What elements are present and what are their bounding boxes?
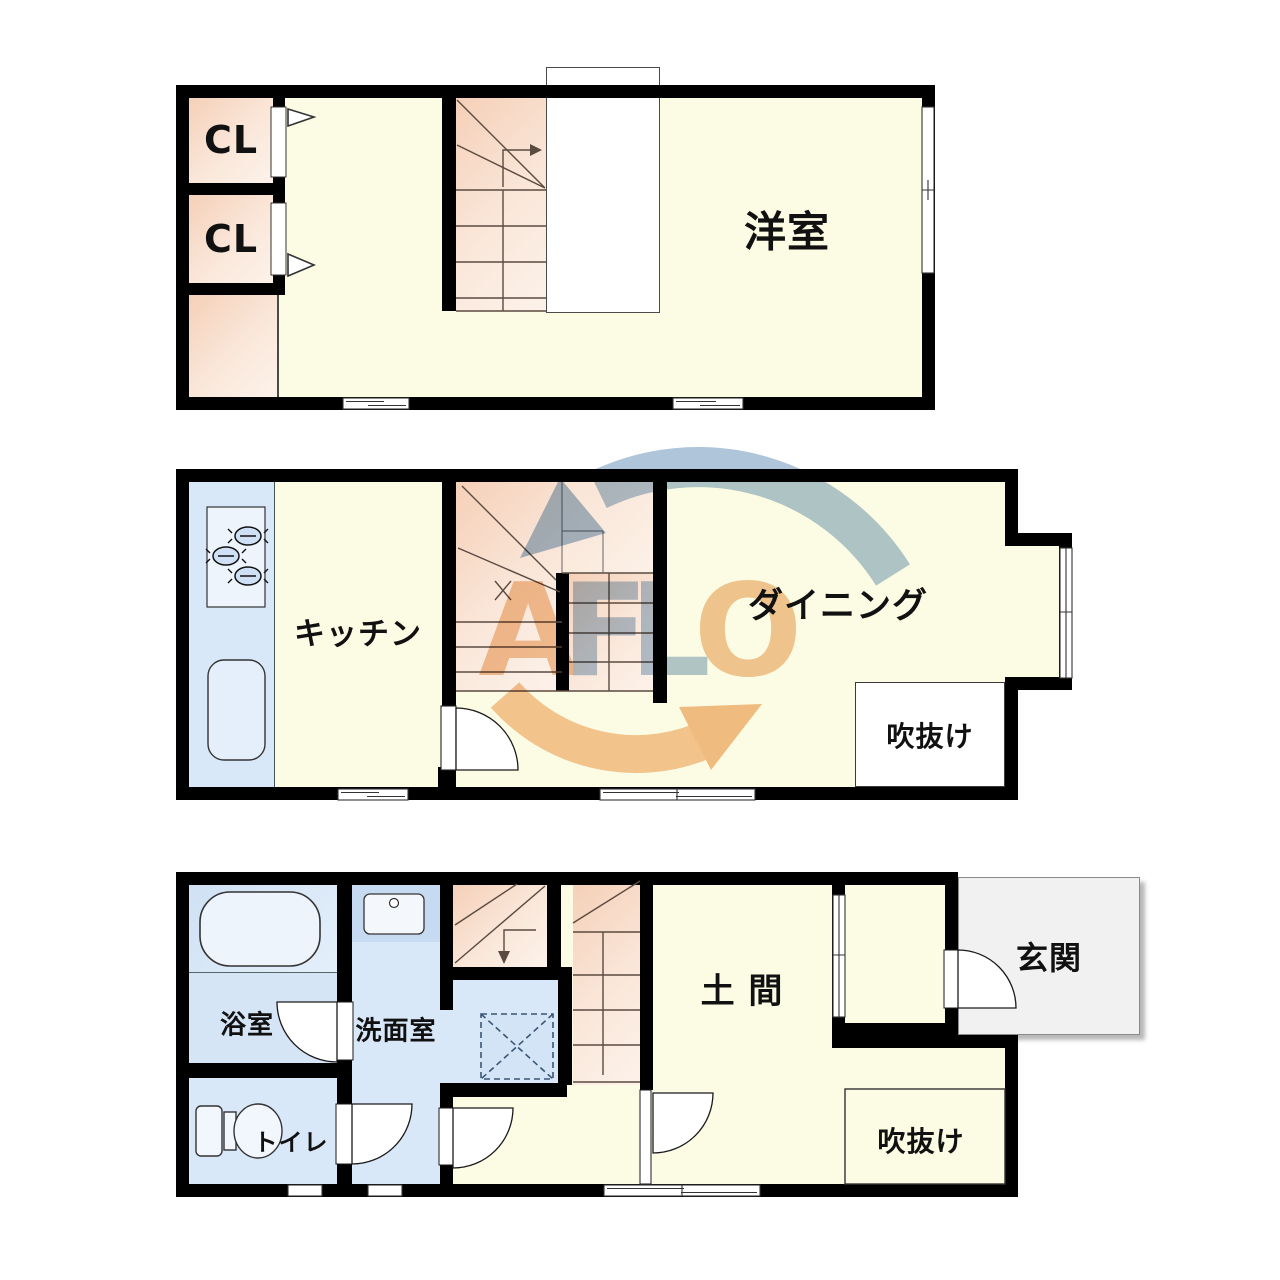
label-closet-2: CL: [204, 217, 258, 261]
label-dining: ダイニング: [748, 578, 928, 629]
watermark-arrowhead-blue: [520, 478, 606, 558]
label-doma: 土 間: [701, 964, 784, 1013]
label-closet-1: CL: [204, 118, 258, 162]
label-atrium-bottom: 吹抜け: [877, 1120, 964, 1160]
watermark: A F L O: [0, 0, 1280, 1280]
label-toilet: トイレ: [254, 1123, 329, 1158]
label-washroom: 洗面室: [355, 1011, 436, 1048]
floor-plan: A F L O CL CL 洋室 キッチン ダイニング 吹抜け 浴室 洗面室 ト…: [0, 0, 1280, 1280]
label-western-room: 洋室: [744, 199, 830, 260]
label-bathroom: 浴室: [220, 1005, 274, 1042]
label-entrance: 玄関: [1016, 933, 1082, 979]
label-kitchen: キッチン: [294, 609, 422, 654]
label-atrium-middle: 吹抜け: [886, 715, 973, 755]
